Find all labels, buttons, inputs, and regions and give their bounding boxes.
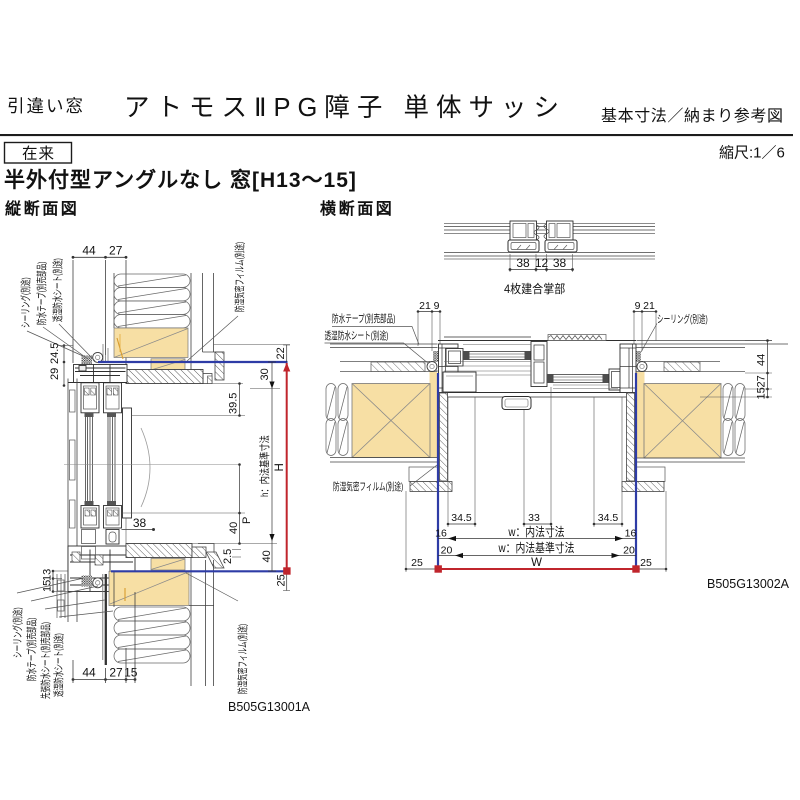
svg-text:12: 12 <box>535 256 549 270</box>
svg-text:34.5: 34.5 <box>598 512 619 524</box>
svg-text:引違い窓: 引違い窓 <box>7 96 85 116</box>
svg-text:16: 16 <box>435 528 447 540</box>
svg-text:40: 40 <box>228 522 240 534</box>
svg-text:アトモスⅡPG障子 単体サッシ: アトモスⅡPG障子 単体サッシ <box>124 94 566 122</box>
svg-text:20: 20 <box>623 545 635 557</box>
svg-text:27: 27 <box>756 375 768 387</box>
svg-text:透湿防水シート(別途): 透湿防水シート(別途) <box>50 258 63 322</box>
svg-text:20: 20 <box>441 545 453 557</box>
svg-text:防水テープ(別売部品): 防水テープ(別売部品) <box>24 617 37 681</box>
svg-text:h：内法基準寸法: h：内法基準寸法 <box>258 435 270 497</box>
svg-text:34.5: 34.5 <box>451 512 472 524</box>
svg-text:27: 27 <box>109 244 123 258</box>
svg-text:9: 9 <box>434 300 440 312</box>
svg-text:H: H <box>274 463 286 471</box>
svg-text:シーリング(別途): シーリング(別途) <box>657 312 708 325</box>
svg-text:縮尺:1／6: 縮尺:1／6 <box>719 145 785 162</box>
svg-text:縦断面図: 縦断面図 <box>5 199 79 218</box>
svg-text:シーリング(別途): シーリング(別途) <box>18 277 31 328</box>
svg-text:4枚建合掌部: 4枚建合掌部 <box>504 282 565 297</box>
svg-text:27: 27 <box>109 666 123 680</box>
svg-text:横断面図: 横断面図 <box>320 199 394 218</box>
svg-text:25: 25 <box>640 557 652 569</box>
svg-text:P: P <box>241 517 253 524</box>
svg-text:B505G13001A: B505G13001A <box>228 700 311 714</box>
svg-text:在来: 在来 <box>22 145 55 163</box>
svg-text:33: 33 <box>528 512 540 524</box>
svg-text:13: 13 <box>42 569 54 581</box>
svg-text:44: 44 <box>82 666 96 680</box>
svg-text:38: 38 <box>133 516 147 530</box>
svg-text:防水テープ(別売部品): 防水テープ(別売部品) <box>34 261 47 325</box>
svg-text:W: W <box>531 557 542 569</box>
svg-text:24.5: 24.5 <box>49 343 61 364</box>
svg-text:防湿気密フィルム(別途): 防湿気密フィルム(別途) <box>235 624 248 694</box>
svg-text:2.5: 2.5 <box>222 549 234 564</box>
svg-text:15: 15 <box>756 387 768 399</box>
svg-text:B505G13002A: B505G13002A <box>707 577 790 591</box>
svg-text:38: 38 <box>553 256 567 270</box>
svg-text:防水テープ(別売部品): 防水テープ(別売部品) <box>332 311 396 324</box>
svg-text:39.5: 39.5 <box>228 393 240 414</box>
svg-text:防湿気密フィルム(別途): 防湿気密フィルム(別途) <box>232 242 245 312</box>
svg-text:25: 25 <box>276 574 288 586</box>
svg-text:30: 30 <box>259 368 271 380</box>
svg-text:21: 21 <box>419 300 431 312</box>
svg-text:w：内法寸法: w：内法寸法 <box>507 524 564 539</box>
svg-text:w：内法基準寸法: w：内法基準寸法 <box>498 540 575 555</box>
svg-text:44: 44 <box>82 244 96 258</box>
svg-text:シーリング(別途): シーリング(別途) <box>10 607 23 658</box>
svg-text:25: 25 <box>411 557 423 569</box>
svg-text:半外付型アングルなし 窓[H13～15]: 半外付型アングルなし 窓[H13～15] <box>4 168 357 192</box>
svg-text:22: 22 <box>275 347 287 359</box>
svg-text:防湿気密フィルム(別途): 防湿気密フィルム(別途) <box>333 479 403 492</box>
svg-text:38: 38 <box>516 256 530 270</box>
svg-text:44: 44 <box>756 354 768 366</box>
svg-text:16: 16 <box>625 528 637 540</box>
svg-text:29: 29 <box>49 368 61 380</box>
svg-text:透湿防水シート(別途): 透湿防水シート(別途) <box>325 328 389 341</box>
svg-text:40: 40 <box>261 550 273 562</box>
svg-text:21: 21 <box>643 300 655 312</box>
svg-text:先張防水シート(別売部品): 先張防水シート(別売部品) <box>38 622 51 699</box>
svg-text:透湿防水シート(別途): 透湿防水シート(別途) <box>51 633 64 697</box>
svg-text:9: 9 <box>635 300 641 312</box>
svg-text:基本寸法／納まり参考図: 基本寸法／納まり参考図 <box>601 107 784 125</box>
